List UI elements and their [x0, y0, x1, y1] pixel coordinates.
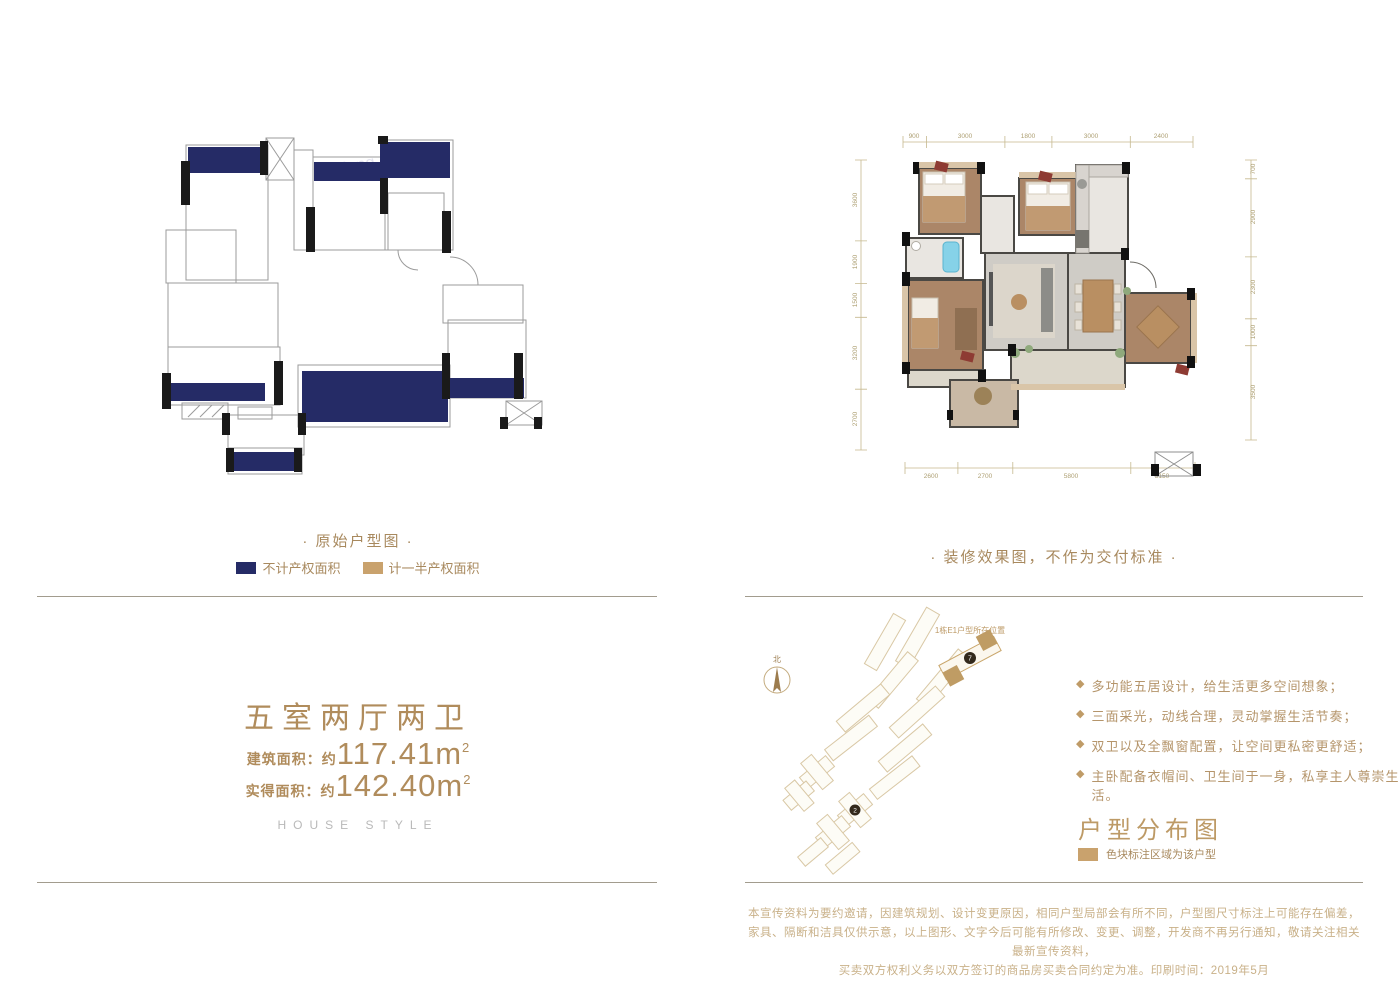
navy-swatch-icon — [236, 562, 256, 574]
svg-text:1000: 1000 — [1250, 324, 1257, 339]
square-sup: 2 — [463, 772, 470, 787]
built-area-row: 建筑面积：约 117.41m 2 — [148, 736, 568, 772]
built-area-label: 建筑面积：约 — [247, 749, 337, 769]
disclaimer-line: 家具、隔断和洁具仅供示意，以上图形、文字今后可能有所修改、变更、调整，开发商不再… — [745, 924, 1363, 962]
feature-text: 三面采光，动线合理，灵动掌握生活节奏； — [1091, 706, 1357, 725]
svg-text:3000: 3000 — [958, 133, 973, 140]
built-area-value: 117.41m — [337, 736, 462, 772]
location-label: 1栋E1户型所在位置 — [935, 625, 1005, 635]
svg-text:2400: 2400 — [1154, 133, 1169, 140]
svg-text:2700: 2700 — [852, 411, 859, 426]
feature-text: 主卧配备衣帽间、卫生间于一身，私享主人尊崇生活。 — [1091, 766, 1400, 804]
svg-text:7: 7 — [968, 656, 972, 663]
divider-line — [37, 882, 657, 883]
disclaimer-block: 本宣传资料为要约邀请，因建筑规划、设计变更原因，相同户型局部会有所不同，户型图尺… — [745, 905, 1363, 981]
area-legend: 不计产权面积 计一半产权面积 — [148, 558, 568, 577]
actual-area-row: 实得面积：约 142.40m 2 — [148, 768, 568, 804]
window-box — [1155, 452, 1193, 476]
divider-line — [37, 596, 657, 597]
actual-area-label: 实得面积：约 — [246, 781, 336, 801]
site-plan-drawing: 北 7 — [755, 600, 1055, 885]
svg-text:3600: 3600 — [852, 192, 859, 207]
legend-item-half-property: 计一半产权面积 — [363, 558, 480, 577]
feature-list: ◆ 多功能五居设计，给生活更多空间想象； ◆ 三面采光，动线合理，灵动掌握生活节… — [1076, 676, 1400, 815]
tan-swatch-icon — [363, 562, 383, 574]
diamond-icon: ◆ — [1076, 766, 1085, 783]
svg-text:3000: 3000 — [1084, 133, 1099, 140]
feature-item: ◆ 多功能五居设计，给生活更多空间想象； — [1076, 676, 1400, 695]
disclaimer-line: 买卖双方权利义务以双方签订的商品房买卖合同约定为准。印刷时间：2019年5月 — [745, 962, 1363, 981]
distribution-legend-label: 色块标注区域为该户型 — [1106, 846, 1216, 862]
feature-text: 多功能五居设计，给生活更多空间想象； — [1091, 676, 1343, 695]
divider-line — [745, 596, 1363, 597]
feature-item: ◆ 双卫以及全飘窗配置，让空间更私密更舒适； — [1076, 736, 1400, 755]
legend-label: 不计产权面积 — [262, 558, 340, 577]
house-style-subtitle: HOUSE STYLE — [148, 818, 568, 832]
furnished-floorplan-drawing: 900 3000 1800 3000 2400 2600 2700 5800 3… — [843, 112, 1273, 497]
tan-swatch-icon — [1078, 848, 1098, 861]
actual-area-value: 142.40m — [336, 768, 464, 804]
diamond-icon: ◆ — [1076, 706, 1085, 723]
svg-text:900: 900 — [909, 133, 920, 140]
svg-text:北: 北 — [773, 655, 781, 664]
flyer-page: Fang — [0, 0, 1400, 989]
svg-text:2700: 2700 — [978, 473, 993, 480]
svg-text:1900: 1900 — [852, 254, 859, 269]
entry-door-arc — [1130, 262, 1156, 288]
unit-title: 五室两厅两卫 — [148, 693, 568, 737]
svg-text:3500: 3500 — [1250, 384, 1257, 399]
feature-text: 双卫以及全飘窗配置，让空间更私密更舒适； — [1091, 736, 1371, 755]
svg-text:700: 700 — [1250, 163, 1257, 174]
original-floorplan-drawing: Fang — [148, 115, 568, 505]
svg-text:2300: 2300 — [1250, 279, 1257, 294]
svg-text:1500: 1500 — [852, 292, 859, 307]
distribution-legend: 色块标注区域为该户型 — [1078, 846, 1216, 862]
original-plan-caption: · 原始户型图 · — [148, 530, 568, 551]
highlighted-building: 7 — [939, 629, 1001, 686]
svg-text:2900: 2900 — [1250, 209, 1257, 224]
legend-label: 计一半产权面积 — [389, 558, 480, 577]
diamond-icon: ◆ — [1076, 676, 1085, 693]
disclaimer-line: 本宣传资料为要约邀请，因建筑规划、设计变更原因，相同户型局部会有所不同，户型图尺… — [745, 905, 1363, 924]
feature-item: ◆ 三面采光，动线合理，灵动掌握生活节奏； — [1076, 706, 1400, 725]
compass-icon: 北 — [764, 655, 790, 693]
furnished-plan-caption: · 装修效果图，不作为交付标准 · — [745, 546, 1363, 567]
svg-text:5800: 5800 — [1064, 473, 1079, 480]
diamond-icon: ◆ — [1076, 736, 1085, 753]
square-sup: 2 — [462, 740, 469, 755]
svg-text:2600: 2600 — [924, 473, 939, 480]
svg-text:2: 2 — [853, 808, 857, 815]
svg-text:1800: 1800 — [1021, 133, 1036, 140]
feature-item: ◆ 主卧配备衣帽间、卫生间于一身，私享主人尊崇生活。 — [1076, 766, 1400, 804]
svg-text:3200: 3200 — [852, 345, 859, 360]
distribution-heading: 户型分布图 — [1078, 810, 1223, 845]
legend-item-non-property: 不计产权面积 — [236, 558, 340, 577]
building-outlines — [783, 607, 969, 874]
